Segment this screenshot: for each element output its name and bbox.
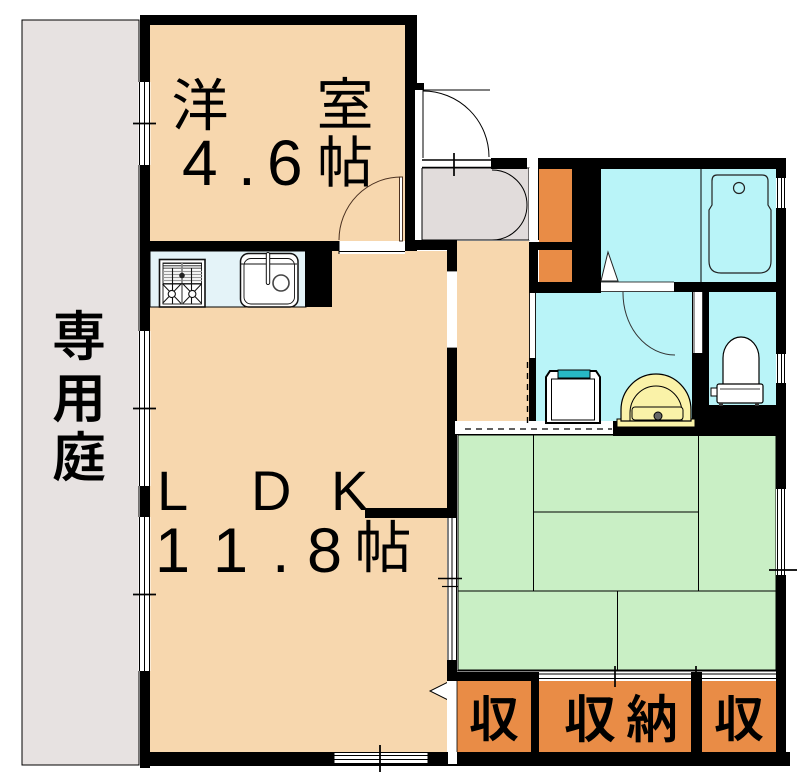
svg-text:1: 1 xyxy=(155,516,190,586)
svg-text:K: K xyxy=(331,459,368,522)
svg-text:4: 4 xyxy=(182,127,218,199)
svg-text:6: 6 xyxy=(267,127,303,199)
svg-text:L: L xyxy=(157,459,188,522)
svg-text:D: D xyxy=(251,459,291,522)
svg-text:8: 8 xyxy=(307,516,342,586)
svg-text:.: . xyxy=(238,127,256,199)
svg-text:.: . xyxy=(272,516,290,586)
svg-text:1: 1 xyxy=(213,516,248,586)
